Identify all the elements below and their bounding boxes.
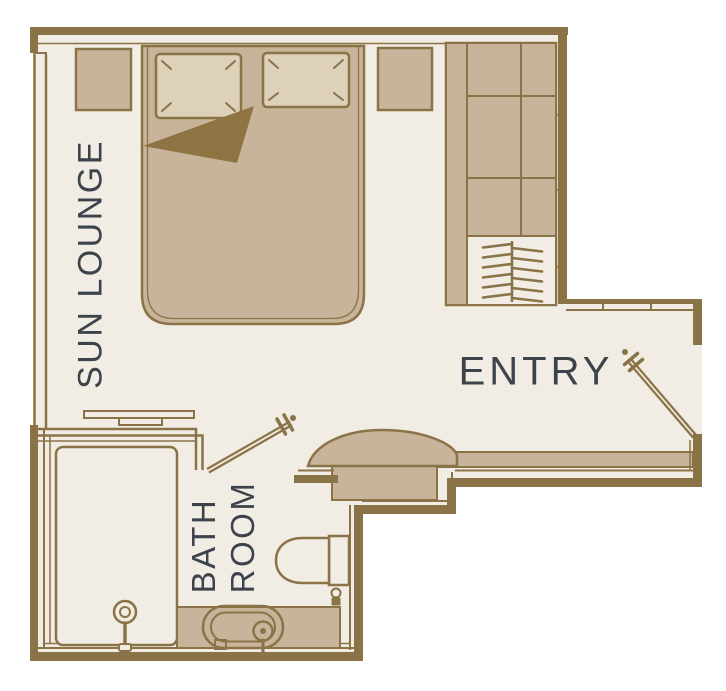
double-bed [142,46,364,324]
room-label-bathroom: BATH ROOM [185,481,263,594]
towel-rail-bracket [119,418,162,425]
entry-door-knob [622,349,628,355]
entry-bottom-wall [447,478,702,487]
room-label-bathroom-line2: ROOM [224,481,263,594]
bathroom-door-jamb [294,475,338,483]
flush-base-icon [332,598,341,606]
wardrobe [446,43,556,305]
pillow-right [263,53,349,107]
faucet-dot [260,628,266,634]
room-label-entry: ENTRY [459,350,614,395]
wardrobe-side-panel [446,43,467,305]
shower-head-outer [114,601,136,623]
room-label-sun-lounge: SUN LOUNGE [72,139,111,389]
wardrobe-shelves [467,43,556,236]
flush-button-icon [332,589,341,598]
bathroom-left-wall [30,425,38,661]
toilet-cistern [329,536,349,585]
nightstand-left [76,49,131,110]
pillow-left [156,54,241,118]
shower-foot [119,644,131,651]
room-label-bathroom-line1: BATH [185,481,224,594]
floor-plan: SUN LOUNGE ENTRY BATH ROOM [0,0,726,691]
toilet-bowl [276,538,329,583]
entry-right-wall-upper [693,299,702,345]
step-wall-horizontal [354,505,456,514]
bathroom-bottom-wall [30,652,363,661]
nightstand-right [378,48,432,110]
top-wall [30,27,568,35]
entry-top-wall [562,299,702,304]
bathroom-door-knob [290,415,296,421]
right-wall-main [558,27,567,304]
bathroom-right-wall [354,505,363,657]
top-left-wall-stub [30,27,38,53]
vanity [177,606,340,652]
shower [56,447,177,651]
towel-rail-bar [84,411,194,418]
entry-counter-band [437,452,693,467]
